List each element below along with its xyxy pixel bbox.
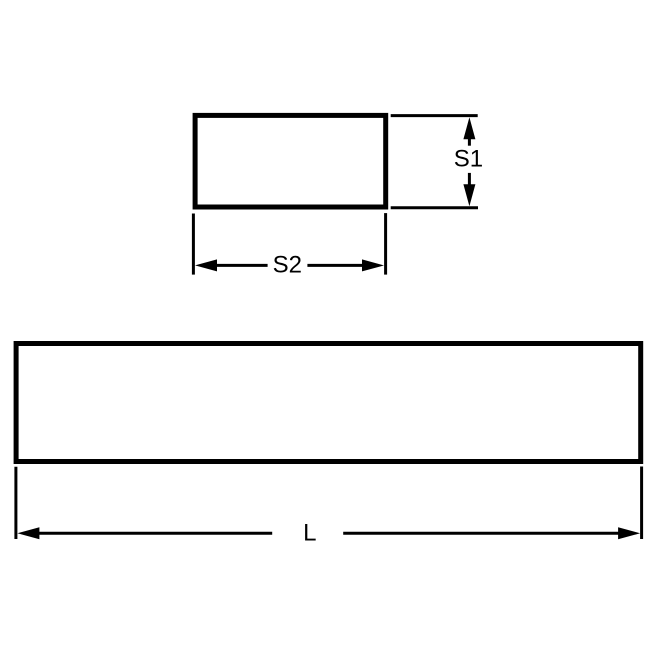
svg-text:S1: S1 bbox=[454, 145, 483, 172]
svg-text:S2: S2 bbox=[273, 252, 302, 279]
svg-text:L: L bbox=[303, 520, 316, 547]
